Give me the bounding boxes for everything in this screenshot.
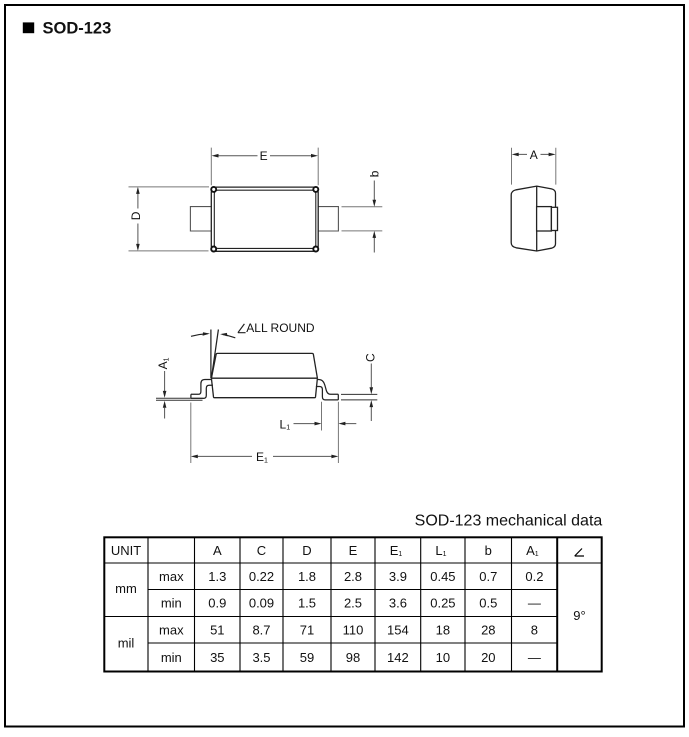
svg-text:min: min <box>161 650 182 665</box>
svg-text:E1: E1 <box>256 450 268 464</box>
svg-text:max: max <box>159 623 184 638</box>
svg-text:A1: A1 <box>526 543 539 558</box>
svg-text:E: E <box>349 543 358 558</box>
svg-text:2.5: 2.5 <box>344 596 362 611</box>
svg-text:0.5: 0.5 <box>479 596 497 611</box>
svg-text:59: 59 <box>300 650 314 665</box>
svg-text:98: 98 <box>346 650 360 665</box>
svg-text:8: 8 <box>531 623 538 638</box>
svg-text:0.7: 0.7 <box>479 569 497 584</box>
svg-text:L1: L1 <box>280 417 291 431</box>
svg-text:E1: E1 <box>390 543 403 558</box>
svg-text:D: D <box>129 211 143 220</box>
svg-text:0.9: 0.9 <box>208 596 226 611</box>
svg-text:A: A <box>530 148 538 162</box>
svg-text:—: — <box>528 650 541 665</box>
svg-text:—: — <box>528 596 541 611</box>
svg-text:110: 110 <box>343 623 364 638</box>
svg-text:mm: mm <box>115 581 137 596</box>
svg-text:3.6: 3.6 <box>389 596 407 611</box>
svg-text:3.9: 3.9 <box>389 569 407 584</box>
svg-text:28: 28 <box>481 623 495 638</box>
svg-text:18: 18 <box>436 623 450 638</box>
svg-text:b: b <box>368 170 382 177</box>
svg-text:2.8: 2.8 <box>344 569 362 584</box>
svg-text:D: D <box>302 543 311 558</box>
svg-text:b: b <box>485 543 492 558</box>
svg-text:154: 154 <box>387 623 409 638</box>
svg-text:0.2: 0.2 <box>525 569 543 584</box>
svg-text:ALL ROUND: ALL ROUND <box>246 321 315 335</box>
svg-text:1.8: 1.8 <box>298 569 316 584</box>
svg-text:0.22: 0.22 <box>249 569 274 584</box>
svg-text:20: 20 <box>481 650 495 665</box>
svg-text:3.5: 3.5 <box>252 650 270 665</box>
svg-text:1.5: 1.5 <box>298 596 316 611</box>
svg-text:L1: L1 <box>435 543 446 558</box>
svg-text:UNIT: UNIT <box>111 543 141 558</box>
svg-text:1.3: 1.3 <box>208 569 226 584</box>
svg-text:SOD-123: SOD-123 <box>43 20 112 38</box>
svg-text:SOD-123 mechanical data: SOD-123 mechanical data <box>415 513 603 530</box>
svg-text:C: C <box>257 543 266 558</box>
svg-text:0.25: 0.25 <box>430 596 455 611</box>
svg-text:min: min <box>161 596 182 611</box>
svg-text:A1: A1 <box>156 357 170 369</box>
svg-text:mil: mil <box>118 636 135 651</box>
svg-text:C: C <box>363 353 377 362</box>
svg-text:0.09: 0.09 <box>249 596 274 611</box>
svg-text:E: E <box>260 149 268 163</box>
svg-text:51: 51 <box>210 623 224 638</box>
svg-text:0.45: 0.45 <box>430 569 455 584</box>
svg-text:max: max <box>159 569 184 584</box>
svg-text:71: 71 <box>300 623 314 638</box>
svg-text:A: A <box>213 543 222 558</box>
svg-text:142: 142 <box>387 650 409 665</box>
svg-text:35: 35 <box>210 650 224 665</box>
svg-text:8.7: 8.7 <box>252 623 270 638</box>
svg-text:9°: 9° <box>573 608 585 623</box>
svg-text:10: 10 <box>436 650 450 665</box>
